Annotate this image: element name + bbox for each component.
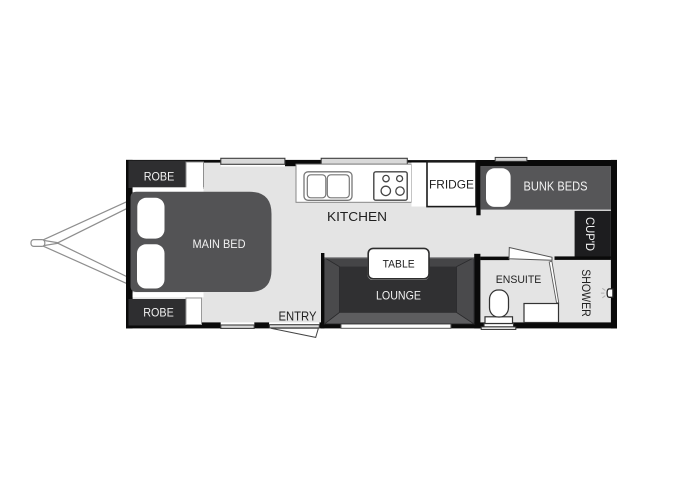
svg-text:MAIN BED: MAIN BED xyxy=(193,237,246,251)
svg-text:FRIDGE: FRIDGE xyxy=(429,177,474,191)
svg-text:ROBE: ROBE xyxy=(144,172,175,184)
svg-text:TABLE: TABLE xyxy=(383,259,415,271)
svg-text:ENTRY: ENTRY xyxy=(279,310,318,324)
svg-text:ENSUITE: ENSUITE xyxy=(496,274,542,286)
svg-text:LOUNGE: LOUNGE xyxy=(376,289,421,303)
svg-text:KITCHEN: KITCHEN xyxy=(327,209,387,224)
svg-text:BUNK BEDS: BUNK BEDS xyxy=(524,180,588,194)
svg-text:CUP'D: CUP'D xyxy=(583,217,595,251)
svg-text:ROBE: ROBE xyxy=(143,308,174,320)
svg-text:SHOWER: SHOWER xyxy=(579,269,593,317)
